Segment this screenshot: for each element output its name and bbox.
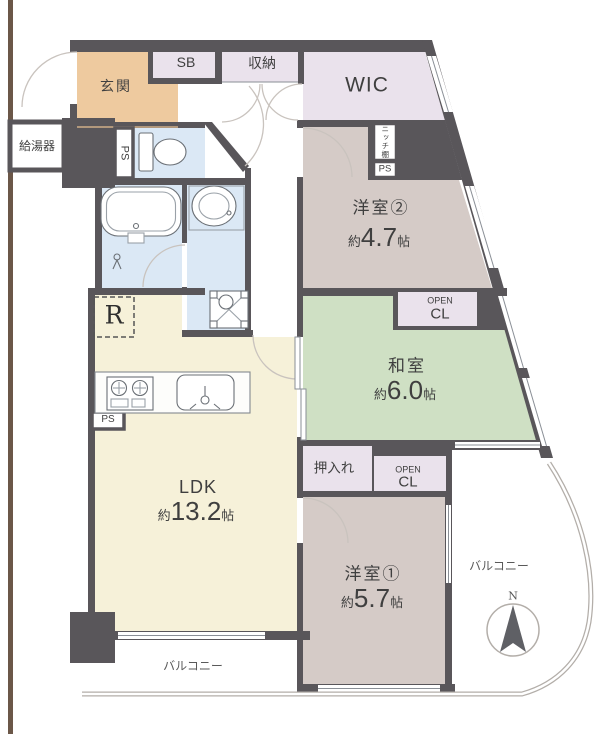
japanese-approx: 約 [374,387,387,402]
japanese-value: 6.0 [387,375,423,405]
label-shoebox: SB [177,55,196,69]
toilet-door-arc [245,86,263,166]
western2-unit: 帖 [397,234,410,249]
ldk-approx: 約 [158,508,171,523]
label-water-heater: 給湯器 [19,140,55,152]
stove-fixture [107,377,153,410]
washing-machine-pan [210,291,248,328]
label-wic: WIC [345,75,389,96]
label-ps-niche: PS [379,164,392,174]
western1-approx: 約 [341,595,354,610]
bathtub-fixture [101,187,181,243]
sink-fixture [177,375,234,410]
ldk-unit: 帖 [221,508,234,523]
label-niche-shelf: ニッチ棚 [381,125,389,159]
label-western1-name: 洋室① [345,566,402,583]
floorplan-drawing [0,0,600,734]
label-refrigerator: R [105,303,124,328]
western1-unit: 帖 [390,595,403,610]
japanese-unit: 帖 [423,387,436,402]
label-opencl-lower-2: CL [398,475,417,490]
label-opencl-upper-1: OPEN [427,297,453,306]
label-entrance: 玄関 [100,79,132,93]
entrance-door-arc [22,52,77,107]
room-ldk-floor [95,295,297,633]
western2-value: 4.7 [361,222,397,252]
label-ps-left: PS [119,146,130,161]
label-ldk-size: 約13.2帖 [158,498,235,524]
label-compass-north: N [508,591,518,602]
label-western1-size: 約5.7帖 [341,585,403,611]
western2-approx: 約 [348,234,361,249]
label-ldk-name: LDK [179,478,217,496]
compass-icon [487,604,539,656]
label-ps-kitchen: PS [101,415,114,425]
label-oshiire: 押入れ [314,461,355,475]
label-balcony-bottom: バルコニー [163,660,223,672]
storage-door-arc-left [222,84,260,122]
label-balcony-right: バルコニー [469,560,529,572]
wic-door-arc [266,84,302,120]
floorplan-page: 玄関 SB 収納 WIC ニッチ棚 PS PS PS 給湯器 洋室② 約4.7帖… [0,0,600,734]
label-japanese-name: 和室 [388,358,426,375]
label-western2-size: 約4.7帖 [348,224,410,250]
storage-door-arc-right [262,84,298,120]
ldk-value: 13.2 [171,496,222,526]
label-japanese-size: 約6.0帖 [374,377,436,403]
label-opencl-upper-2: CL [430,307,449,322]
label-western2-name: 洋室② [353,200,410,217]
kitchen-counter [95,372,250,413]
label-storage: 収納 [248,56,276,70]
western1-value: 5.7 [354,583,390,613]
